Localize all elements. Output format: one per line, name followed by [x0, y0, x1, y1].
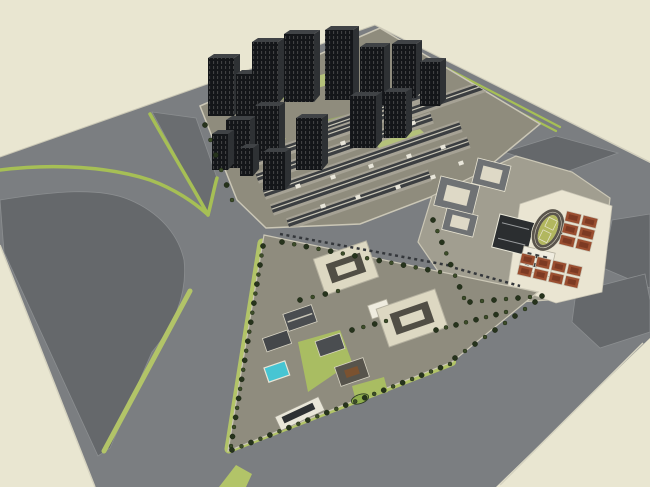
tower-side-face	[440, 58, 446, 106]
tree	[414, 265, 418, 269]
tree	[202, 122, 207, 127]
tree	[229, 447, 234, 452]
tower	[420, 58, 446, 106]
tower	[212, 130, 234, 170]
tree	[241, 368, 245, 372]
tree	[341, 252, 345, 256]
tree	[457, 284, 462, 289]
tree	[381, 388, 386, 393]
tree	[254, 282, 259, 287]
tree	[279, 239, 284, 244]
tree	[448, 262, 453, 267]
tower-windows	[325, 30, 353, 100]
tree	[233, 415, 238, 420]
tree	[315, 414, 319, 418]
tower	[325, 26, 359, 100]
tree	[438, 365, 443, 370]
tree	[238, 387, 242, 391]
tower-side-face	[278, 38, 284, 104]
tree	[244, 349, 248, 353]
tree	[230, 434, 235, 439]
tree	[343, 403, 348, 408]
tree	[253, 292, 257, 296]
tree	[239, 377, 244, 382]
tree	[372, 392, 376, 396]
tower	[240, 144, 259, 176]
tower-windows	[263, 152, 285, 190]
tree	[532, 299, 537, 304]
tree	[425, 267, 430, 272]
site-plan-render	[0, 0, 650, 487]
tree	[328, 249, 333, 254]
tree	[256, 273, 260, 277]
tower-side-face	[406, 88, 412, 138]
tree	[248, 320, 253, 325]
tower	[252, 38, 284, 104]
tree	[480, 299, 484, 303]
tree	[528, 295, 532, 299]
tower-windows	[252, 42, 278, 104]
tree	[539, 293, 544, 298]
tower	[384, 88, 412, 138]
tree	[429, 370, 433, 374]
tree	[444, 325, 448, 329]
tree	[353, 399, 357, 403]
tower-side-face	[314, 30, 320, 102]
tower-windows	[208, 58, 234, 116]
tower-windows	[212, 134, 228, 170]
tree	[240, 444, 244, 448]
tower-windows	[384, 92, 406, 138]
tree	[400, 380, 405, 385]
tree	[242, 358, 247, 363]
tree	[483, 335, 487, 339]
tower	[350, 92, 382, 148]
tower-side-face	[376, 92, 382, 148]
tree	[439, 240, 444, 245]
tree	[504, 297, 508, 301]
tower	[263, 148, 291, 190]
tree	[292, 242, 296, 246]
tree	[389, 261, 393, 265]
tower-windows	[284, 34, 314, 102]
tree	[523, 307, 527, 311]
tree	[230, 198, 234, 202]
tree	[433, 327, 438, 332]
tree	[317, 247, 321, 251]
tree	[515, 295, 520, 300]
tree	[512, 313, 517, 318]
tower	[208, 54, 240, 116]
tree	[324, 410, 329, 415]
tree	[219, 168, 223, 172]
tree	[323, 291, 328, 296]
tree	[336, 289, 340, 293]
tree	[236, 396, 241, 401]
tree	[251, 301, 256, 306]
tree	[352, 253, 357, 258]
tower-windows	[420, 62, 440, 106]
tower-side-face	[285, 148, 291, 190]
tree	[464, 320, 468, 324]
tree	[453, 322, 458, 327]
tree	[473, 317, 478, 322]
tree	[438, 270, 442, 274]
tree	[250, 311, 254, 315]
tower	[296, 114, 328, 170]
tree	[430, 217, 435, 222]
tower	[284, 30, 320, 102]
tree	[296, 422, 300, 426]
tower-roof	[284, 30, 320, 34]
tree	[384, 319, 388, 323]
tower-windows	[296, 118, 322, 170]
tree	[491, 297, 496, 302]
tree	[248, 440, 253, 445]
tree	[435, 229, 439, 233]
tree	[260, 254, 264, 258]
tree	[472, 341, 477, 346]
tree	[224, 182, 229, 187]
tree	[365, 256, 369, 260]
tree	[260, 243, 265, 248]
tree	[504, 310, 508, 314]
tree	[361, 325, 365, 329]
tree	[448, 362, 452, 366]
tree	[267, 432, 272, 437]
tree	[297, 297, 302, 302]
tree	[304, 244, 309, 249]
tree	[258, 437, 262, 441]
tree	[247, 330, 251, 334]
tree	[286, 425, 291, 430]
tree	[245, 339, 250, 344]
tower-windows	[350, 96, 376, 148]
tree	[257, 262, 262, 267]
tree	[305, 418, 310, 423]
tree	[208, 138, 212, 142]
tree	[410, 377, 414, 381]
tree	[235, 406, 239, 410]
tree	[377, 258, 382, 263]
tree	[444, 251, 448, 255]
tree	[484, 315, 488, 319]
tree	[362, 395, 367, 400]
tree	[493, 312, 498, 317]
tower-side-face	[228, 130, 234, 170]
tree	[213, 152, 218, 157]
tree	[401, 263, 406, 268]
tower-side-face	[322, 114, 328, 170]
tower-roof	[325, 26, 359, 30]
tree	[232, 425, 236, 429]
tree	[453, 274, 457, 278]
model-viewport[interactable]	[0, 0, 650, 487]
tree	[462, 296, 466, 300]
tree	[492, 327, 497, 332]
tree	[419, 373, 424, 378]
tree	[391, 384, 395, 388]
tree	[277, 429, 281, 433]
tower-side-face	[353, 26, 359, 100]
tree	[334, 407, 338, 411]
tree	[349, 327, 354, 332]
tree	[452, 355, 457, 360]
tree	[503, 321, 507, 325]
tower-windows	[240, 148, 253, 176]
tree	[311, 295, 315, 299]
tree	[463, 349, 467, 353]
tree	[467, 299, 472, 304]
tree	[372, 321, 377, 326]
